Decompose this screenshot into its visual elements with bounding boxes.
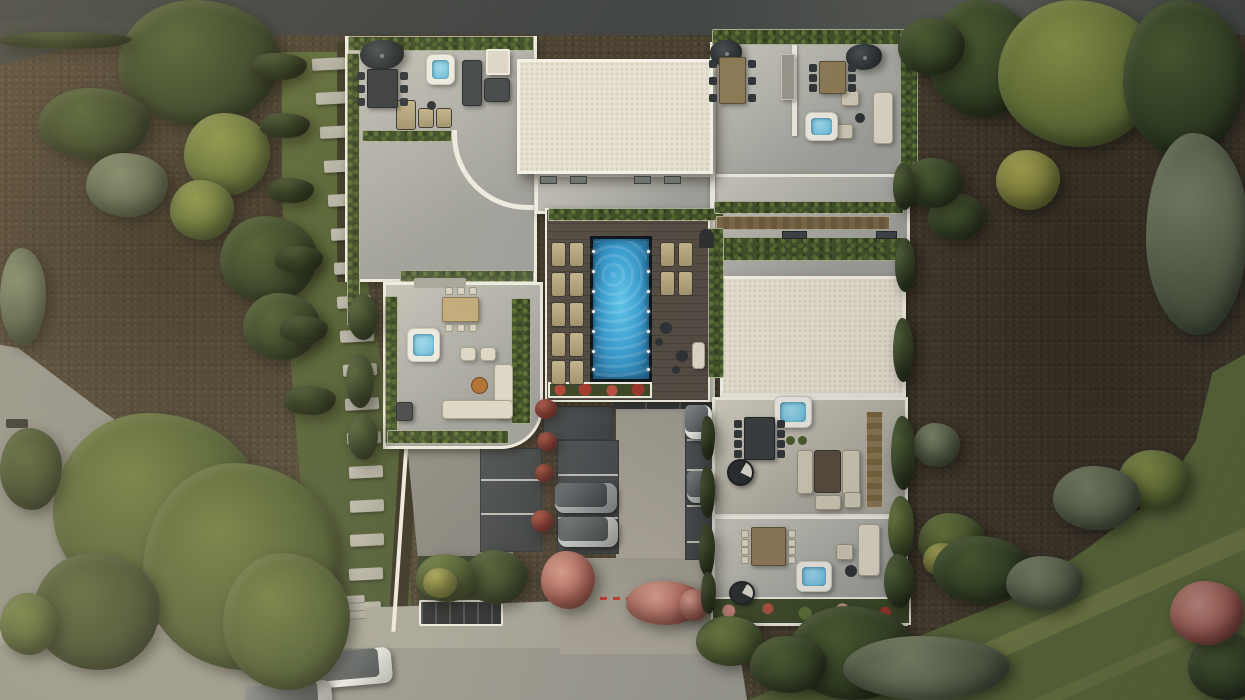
tree-g-dark: [1123, 0, 1245, 157]
tree-g-dark: [898, 18, 965, 75]
tree-hedge-dark: [275, 246, 323, 273]
tree-hedge-dark: [701, 416, 715, 460]
tree-g-sun: [170, 180, 234, 240]
tree-hedge-dark: [699, 524, 715, 576]
tree-g-yellow: [423, 568, 457, 598]
tree-olive: [0, 248, 46, 345]
tree-hedge-dark: [250, 53, 307, 80]
tree-hedge-dark: [700, 466, 715, 518]
tree-olive: [913, 423, 960, 467]
tree-g-dark: [895, 238, 915, 292]
tree-g-dark: [38, 88, 150, 160]
flowering-bush: [541, 551, 595, 609]
tree-olive: [86, 153, 168, 217]
flowering-bush: [537, 432, 557, 451]
tree-hedge-dark: [268, 178, 314, 203]
tree-g-yellow: [996, 150, 1060, 210]
tree-g-dark: [348, 414, 378, 460]
tree-olive: [1006, 556, 1083, 610]
tree-hedge-dark: [701, 572, 716, 614]
aerial-villa-render: [0, 0, 1245, 700]
flowering-bush: [1170, 581, 1244, 645]
tree-g-dark: [750, 636, 827, 693]
vegetation: [0, 0, 1245, 700]
tree-hedge-dark: [284, 386, 336, 415]
tree-hedge-dark: [260, 113, 310, 138]
tree-g-dark: [884, 554, 914, 608]
tree-g-dark: [893, 318, 913, 382]
tree-g-dark: [0, 428, 62, 510]
tree-hedge-dark: [0, 32, 132, 49]
tree-g-mid: [888, 496, 914, 560]
tree-g-dark: [891, 416, 915, 490]
tree-g-mid: [223, 553, 350, 690]
flowering-bush: [535, 464, 553, 482]
tree-olive: [1053, 466, 1140, 530]
tree-hedge-dark: [280, 316, 328, 343]
flowering-bush: [535, 399, 557, 419]
tree-g-dark: [348, 294, 378, 340]
tree-olive: [1146, 133, 1245, 335]
tree-g-mid: [0, 593, 57, 655]
flowering-bush: [531, 510, 553, 532]
tree-g-dark: [893, 163, 915, 210]
tree-g-dark: [346, 354, 374, 408]
tree-olive: [843, 636, 1010, 700]
